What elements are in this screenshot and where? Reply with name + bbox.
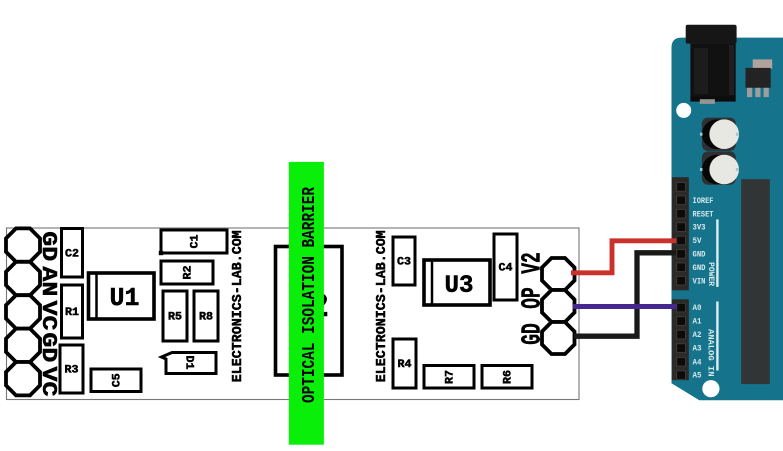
svg-text:R1: R1 <box>65 307 79 319</box>
svg-text:VC: VC <box>36 301 59 331</box>
svg-text:A1: A1 <box>693 318 702 327</box>
svg-text:C2: C2 <box>65 248 79 260</box>
svg-text:U3: U3 <box>445 271 474 300</box>
svg-text:R3: R3 <box>65 364 79 376</box>
svg-text:A5: A5 <box>693 372 702 381</box>
svg-text:IOREF: IOREF <box>693 197 714 206</box>
svg-text:ANALOG IN: ANALOG IN <box>706 329 715 377</box>
svg-text:C3: C3 <box>397 256 411 268</box>
svg-text:R4: R4 <box>398 359 412 371</box>
svg-text:GD: GD <box>36 332 59 362</box>
svg-text:A0: A0 <box>693 304 702 313</box>
svg-text:U1: U1 <box>110 283 140 313</box>
svg-text:R2: R2 <box>182 266 194 280</box>
svg-text:GND: GND <box>693 251 706 260</box>
svg-text:OPTICAL ISOLATION BARRIER: OPTICAL ISOLATION BARRIER <box>300 187 320 403</box>
svg-text:RESET: RESET <box>693 210 714 219</box>
svg-text:C1: C1 <box>189 234 201 248</box>
svg-text:ELECTRONICS-LAB.COM: ELECTRONICS-LAB.COM <box>230 230 246 382</box>
svg-text:A3: A3 <box>693 345 702 354</box>
svg-text:5V: 5V <box>693 237 702 246</box>
svg-text:R8: R8 <box>199 311 213 323</box>
svg-text:GND: GND <box>693 264 706 273</box>
svg-text:R7: R7 <box>444 370 456 384</box>
svg-text:A4: A4 <box>693 358 702 367</box>
svg-text:OP: OP <box>519 287 549 309</box>
svg-text:R6: R6 <box>502 370 514 384</box>
svg-text:V2: V2 <box>519 252 549 274</box>
svg-text:VC: VC <box>36 367 59 397</box>
svg-text:C5: C5 <box>111 373 123 387</box>
svg-text:AN: AN <box>36 266 59 296</box>
svg-text:GD: GD <box>519 323 549 345</box>
svg-text:A2: A2 <box>693 331 702 340</box>
svg-text:R5: R5 <box>168 311 182 323</box>
svg-text:VIN: VIN <box>693 277 706 286</box>
svg-text:ELECTRONICS-LAB.COM: ELECTRONICS-LAB.COM <box>374 230 390 382</box>
svg-text:C4: C4 <box>499 262 513 274</box>
svg-text:POWER: POWER <box>706 262 715 286</box>
svg-text:D1: D1 <box>183 356 195 370</box>
svg-text:GD: GD <box>36 231 59 261</box>
svg-text:3V3: 3V3 <box>693 224 706 233</box>
